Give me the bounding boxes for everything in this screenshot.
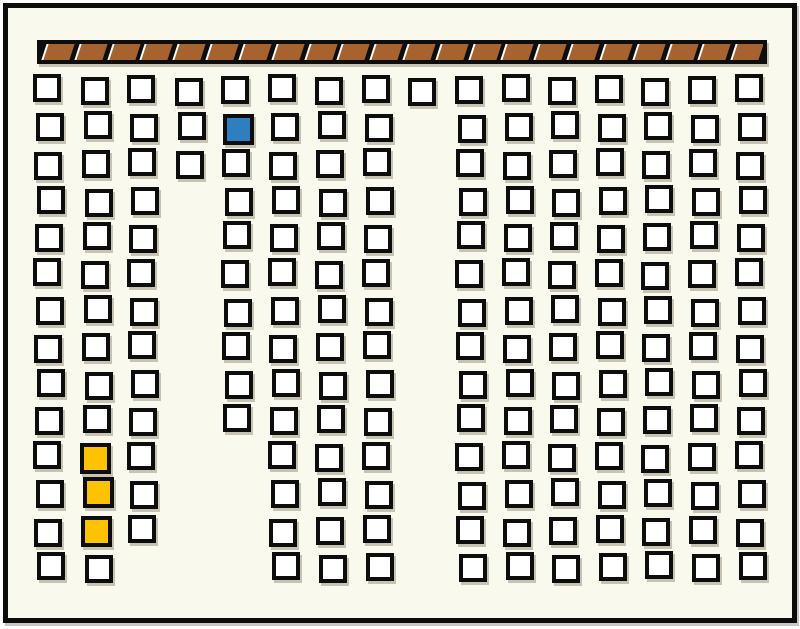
hatched-bar-segment [599,44,632,60]
seat-square[interactable] [85,372,113,400]
seat-square[interactable] [599,553,627,581]
seat-square[interactable] [222,149,250,177]
seat-square[interactable] [739,369,767,397]
seat-square[interactable] [269,152,297,180]
seat-square[interactable] [268,258,296,286]
hatched-bar-segment [74,44,107,60]
seat-square[interactable] [271,113,299,141]
seat-square-marked-yellow[interactable] [80,443,111,474]
seat-square[interactable] [645,368,673,396]
seat-square[interactable] [81,261,109,289]
seat-square[interactable] [127,442,155,470]
hatched-bar-segment [435,44,468,60]
seat-square[interactable] [318,478,346,506]
seat-square[interactable] [688,76,716,104]
seat-square[interactable] [127,75,155,103]
hatched-bar-segment [41,44,74,60]
seat-square[interactable] [597,408,625,436]
seat-square[interactable] [644,112,672,140]
hatched-bar-segment [731,44,763,60]
seat-square[interactable] [175,78,203,106]
seat-square[interactable] [364,225,392,253]
seat-square[interactable] [37,552,65,580]
seat-square[interactable] [552,372,580,400]
seat-square[interactable] [225,188,253,216]
seat-square[interactable] [642,518,670,546]
seat-square[interactable] [129,408,157,436]
seat-square[interactable] [316,517,344,545]
seat-square[interactable] [128,515,156,543]
seat-square[interactable] [456,332,484,360]
seat-square[interactable] [503,335,531,363]
seat-square[interactable] [270,407,298,435]
seat-square[interactable] [643,223,671,251]
hatched-bar-segment [140,44,173,60]
seat-square[interactable] [459,554,487,582]
seat-square[interactable] [129,225,157,253]
seat-square[interactable] [365,481,393,509]
hatched-bar-segment [205,44,238,60]
seat-square[interactable] [85,189,113,217]
seat-square[interactable] [643,406,671,434]
seat-square[interactable] [84,111,112,139]
seat-square[interactable] [645,551,673,579]
seat-square[interactable] [365,298,393,326]
seat-square[interactable] [317,222,345,250]
seat-square[interactable] [318,111,346,139]
seat-square[interactable] [642,151,670,179]
seat-square[interactable] [595,259,623,287]
seat-square[interactable] [504,407,532,435]
seat-square[interactable] [692,188,720,216]
seat-square[interactable] [691,482,719,510]
seat-square[interactable] [690,221,718,249]
seat-square[interactable] [272,552,300,580]
seat-square[interactable] [455,260,483,288]
seat-square[interactable] [315,261,343,289]
seat-square[interactable] [691,299,719,327]
seat-square[interactable] [691,115,719,143]
seat-square[interactable] [458,482,486,510]
seat-square[interactable] [599,187,627,215]
seat-square[interactable] [457,221,485,249]
seat-square[interactable] [692,371,720,399]
seat-square[interactable] [690,404,718,432]
hatched-bar-segment [238,44,271,60]
seat-square[interactable] [268,74,296,102]
seat-square[interactable] [503,519,531,547]
hatched-bar-segment [370,44,403,60]
seat-square[interactable] [739,186,767,214]
seat-square[interactable] [131,370,159,398]
seat-square[interactable] [456,149,484,177]
seat-square[interactable] [644,479,672,507]
seat-square[interactable] [551,295,579,323]
seat-square[interactable] [596,515,624,543]
hatched-bar-segment [337,44,370,60]
seat-square[interactable] [506,369,534,397]
seat-square[interactable] [316,150,344,178]
seat-square[interactable] [363,148,391,176]
seat-square[interactable] [455,443,483,471]
seat-square[interactable] [598,481,626,509]
seat-square[interactable] [504,224,532,252]
seat-square[interactable] [130,481,158,509]
seat-square[interactable] [503,152,531,180]
hatched-bar-segment [501,44,534,60]
seat-square[interactable] [222,332,250,360]
seat-square[interactable] [737,407,765,435]
seat-square[interactable] [362,75,390,103]
seat-square[interactable] [35,224,63,252]
seat-square[interactable] [642,334,670,362]
seat-square[interactable] [550,405,578,433]
seat-square[interactable] [82,333,110,361]
seat-square[interactable] [224,299,252,327]
seat-square[interactable] [270,224,298,252]
seat-square[interactable] [317,405,345,433]
seat-square[interactable] [502,441,530,469]
seat-square[interactable] [221,260,249,288]
seat-square[interactable] [505,480,533,508]
seat-square[interactable] [549,333,577,361]
seat-square[interactable] [269,519,297,547]
seat-square[interactable] [505,113,533,141]
seat-square[interactable] [549,150,577,178]
seat-square[interactable] [33,258,61,286]
seat-square[interactable] [549,517,577,545]
seat-square[interactable] [319,372,347,400]
seat-square[interactable] [551,478,579,506]
seat-square[interactable] [35,407,63,435]
seat-square[interactable] [272,186,300,214]
seat-square[interactable] [548,261,576,289]
seat-square[interactable] [83,222,111,250]
seat-square[interactable] [689,332,717,360]
seat-square[interactable] [552,189,580,217]
seat-square[interactable] [36,113,64,141]
seat-square[interactable] [552,555,580,583]
seat-square[interactable] [221,76,249,104]
seat-square[interactable] [455,76,483,104]
hatched-bar-segment [173,44,206,60]
seat-square[interactable] [506,186,534,214]
seat-square[interactable] [316,333,344,361]
seat-square[interactable] [548,77,576,105]
seat-square[interactable] [506,552,534,580]
seat-square[interactable] [84,295,112,323]
seat-square[interactable] [550,222,578,250]
seat-square[interactable] [641,445,669,473]
hatched-bar-segment [402,44,435,60]
seat-square[interactable] [34,519,62,547]
seat-square[interactable] [83,405,111,433]
seat-square[interactable] [223,404,251,432]
seat-square[interactable] [366,187,394,215]
seat-square[interactable] [408,78,436,106]
seat-square[interactable] [738,297,766,325]
seat-square[interactable] [319,555,347,583]
seat-square[interactable] [645,185,673,213]
seat-square[interactable] [599,370,627,398]
map-frame [3,3,797,623]
seat-square[interactable] [128,148,156,176]
seat-square[interactable] [178,112,206,140]
seat-square[interactable] [644,296,672,324]
seat-square[interactable] [738,113,766,141]
seat-square[interactable] [34,152,62,180]
seat-square[interactable] [36,480,64,508]
seat-square[interactable] [595,75,623,103]
seat-square[interactable] [127,259,155,287]
seat-square[interactable] [689,149,717,177]
seat-square[interactable] [595,442,623,470]
seat-square[interactable] [271,297,299,325]
seat-square[interactable] [362,442,390,470]
seat-square[interactable] [131,187,159,215]
hatched-bar-segment [468,44,501,60]
hatched-bar-segment [107,44,140,60]
seat-square[interactable] [315,444,343,472]
seat-square[interactable] [688,443,716,471]
seat-square[interactable] [456,516,484,544]
seat-square[interactable] [641,262,669,290]
seat-square[interactable] [459,371,487,399]
hatched-bar-segment [566,44,599,60]
seat-square[interactable] [362,259,390,287]
seat-square[interactable] [269,335,297,363]
seat-square-selected-blue[interactable] [223,114,254,145]
seat-square[interactable] [268,441,296,469]
seat-square[interactable] [458,115,486,143]
seat-square[interactable] [33,74,61,102]
seat-square[interactable] [598,114,626,142]
seat-square[interactable] [271,480,299,508]
seat-square[interactable] [130,114,158,142]
hatched-bar-segment [304,44,337,60]
seat-square[interactable] [502,74,530,102]
seat-square[interactable] [36,297,64,325]
seat-square[interactable] [736,335,764,363]
hatched-bar-segment [271,44,304,60]
seat-square[interactable] [85,555,113,583]
seat-square[interactable] [363,331,391,359]
seat-square-marked-yellow[interactable] [81,516,112,547]
seat-square[interactable] [225,371,253,399]
seat-square[interactable] [81,77,109,105]
seat-square[interactable] [366,553,394,581]
seat-square[interactable] [738,480,766,508]
seat-square[interactable] [551,111,579,139]
seat-square[interactable] [735,258,763,286]
hatched-bar-segment [632,44,665,60]
seat-square[interactable] [735,441,763,469]
seat-square[interactable] [37,186,65,214]
seat-square[interactable] [37,369,65,397]
hatched-bar-segment [534,44,567,60]
seat-square[interactable] [128,331,156,359]
seat-square[interactable] [272,369,300,397]
seat-square[interactable] [641,78,669,106]
seat-square[interactable] [596,148,624,176]
seat-square[interactable] [34,335,62,363]
seat-square[interactable] [735,74,763,102]
seat-square[interactable] [130,298,158,326]
seat-square[interactable] [736,152,764,180]
seat-square[interactable] [458,299,486,327]
seat-square[interactable] [223,221,251,249]
seat-square[interactable] [459,188,487,216]
seat-square[interactable] [688,260,716,288]
seat-square[interactable] [82,150,110,178]
hatched-bar-stripes [41,44,763,60]
seat-square[interactable] [596,331,624,359]
hatched-bar-segment [698,44,731,60]
seat-square-marked-yellow[interactable] [83,477,114,508]
seat-square[interactable] [736,519,764,547]
seat-square[interactable] [457,404,485,432]
hatched-header-bar [37,40,767,64]
hatched-bar-segment [665,44,698,60]
seat-square[interactable] [548,444,576,472]
seat-square[interactable] [502,258,530,286]
seat-square[interactable] [505,297,533,325]
seat-square[interactable] [692,554,720,582]
seat-square[interactable] [363,515,391,543]
seat-square[interactable] [366,370,394,398]
seat-square[interactable] [33,441,61,469]
seat-square[interactable] [689,516,717,544]
seat-square[interactable] [739,552,767,580]
seat-square[interactable] [319,189,347,217]
seat-square[interactable] [318,295,346,323]
seat-square[interactable] [364,408,392,436]
seat-square[interactable] [315,77,343,105]
seat-square[interactable] [737,224,765,252]
seat-square[interactable] [176,151,204,179]
seat-square[interactable] [597,225,625,253]
seat-square[interactable] [365,114,393,142]
seating-map-canvas [0,0,800,629]
seat-square[interactable] [598,298,626,326]
